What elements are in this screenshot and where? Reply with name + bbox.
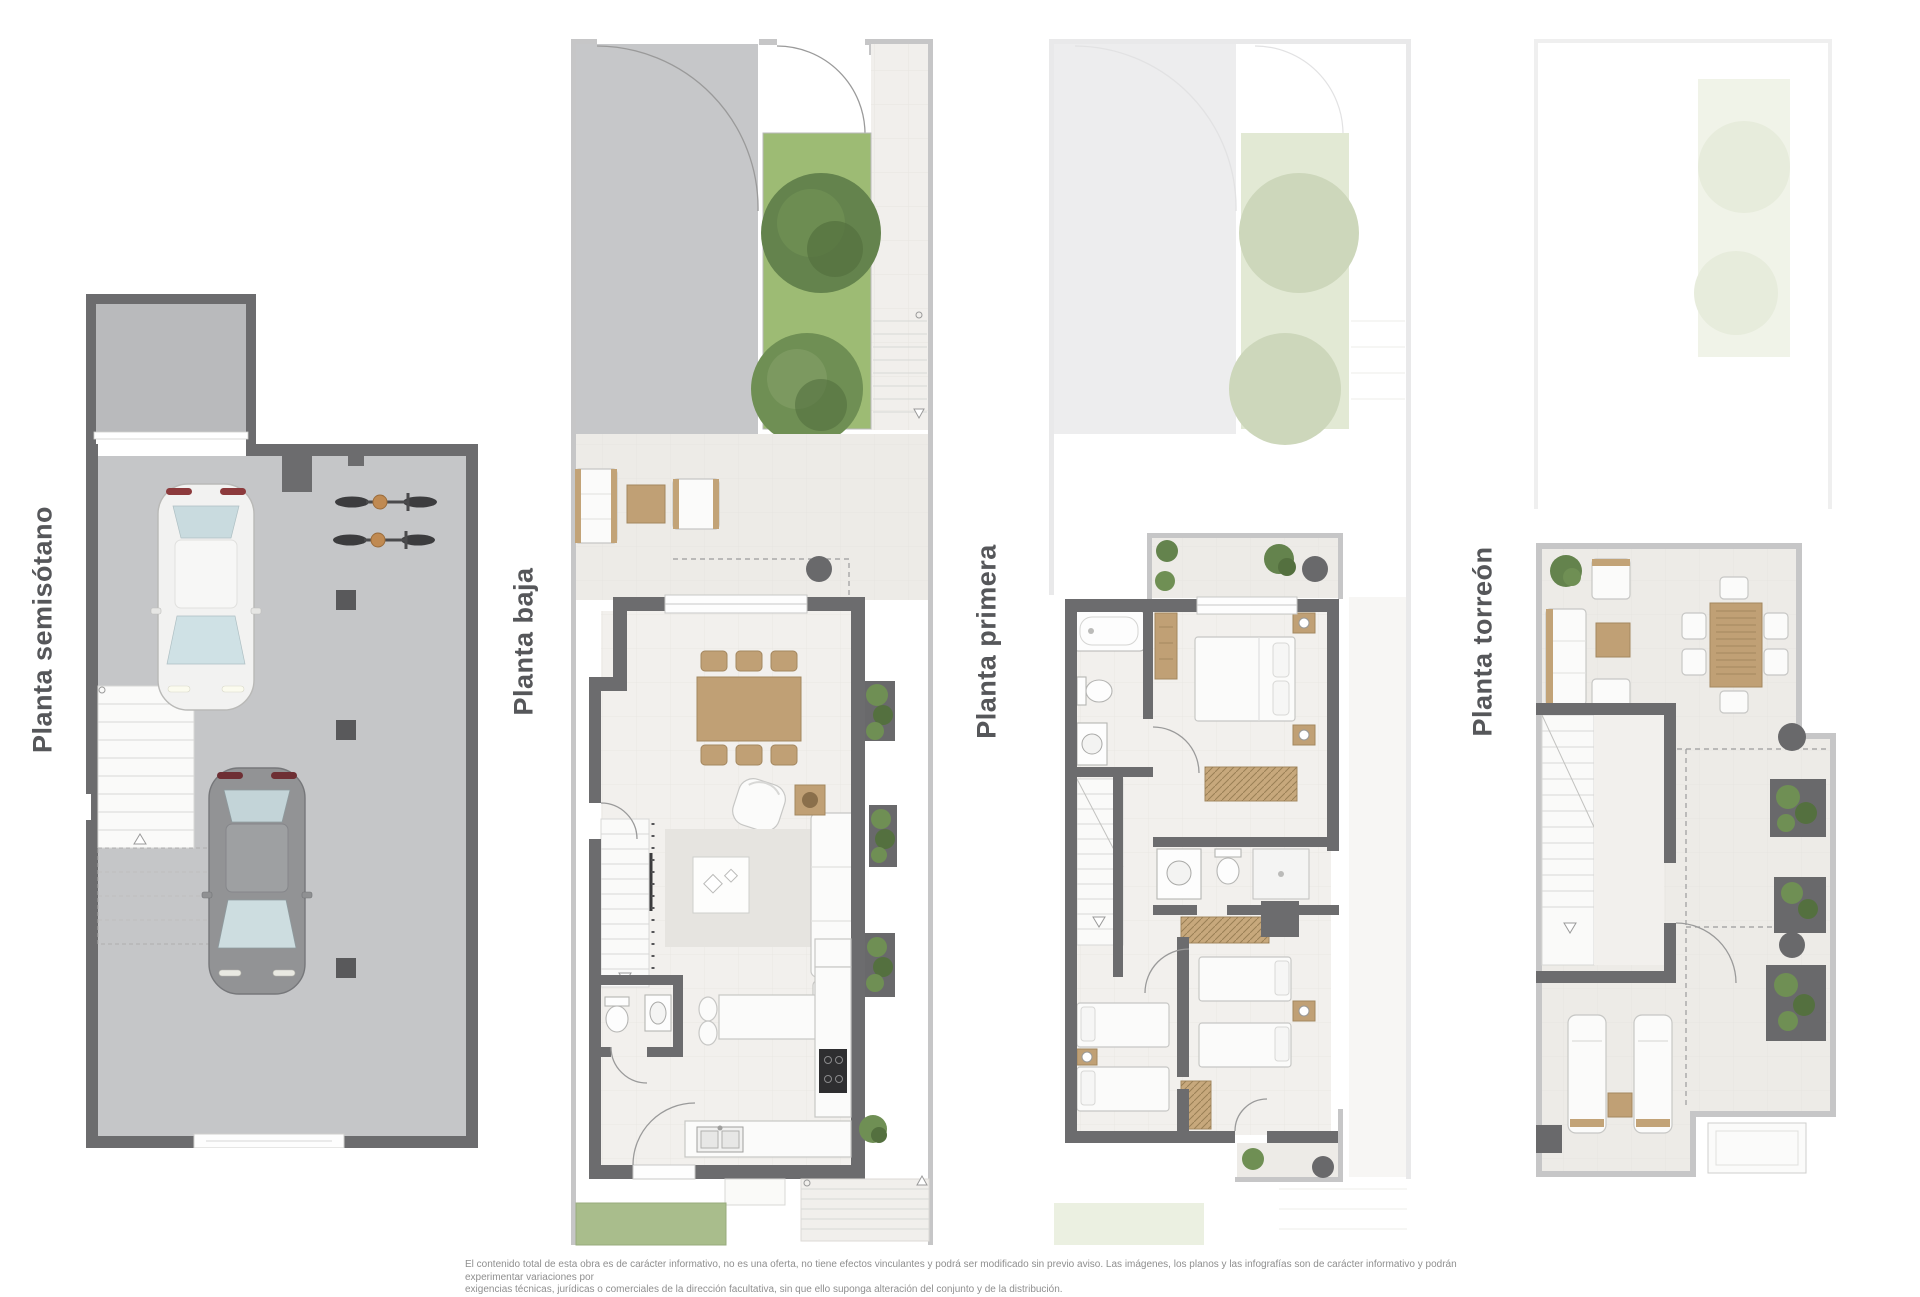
column-icon xyxy=(336,590,356,610)
single-bed-icon xyxy=(1199,957,1291,1001)
planter-icon xyxy=(1774,877,1826,933)
driveway xyxy=(576,44,758,434)
plan-torreon-drawing xyxy=(1530,37,1860,1182)
sun-lounger-icon xyxy=(1568,1015,1606,1133)
corner-block xyxy=(1536,1125,1562,1153)
nightstand-icon xyxy=(1293,725,1315,745)
sink-icon xyxy=(1077,723,1107,765)
disclaimer-line-2: exigencias técnicas, jurídicas o comerci… xyxy=(465,1284,1475,1297)
plan3-label: Planta primera xyxy=(972,482,1003,802)
double-bed-icon xyxy=(1195,637,1295,721)
single-bed-icon xyxy=(1077,1067,1169,1111)
planter-icon xyxy=(865,933,895,997)
column-icon xyxy=(336,720,356,740)
terrace-door-icon xyxy=(633,1165,695,1179)
skylight xyxy=(1708,1123,1806,1173)
coffee-table-icon xyxy=(693,857,749,913)
single-bed-icon xyxy=(1077,1003,1169,1047)
garden-strip xyxy=(576,1203,726,1245)
planter-icon xyxy=(1766,965,1826,1041)
garage-door-icon xyxy=(94,432,248,439)
planter-pot-icon xyxy=(806,556,832,582)
sun-lounger-icon xyxy=(1634,1015,1672,1133)
plan2-label: Planta baja xyxy=(509,482,540,802)
coffee-table-icon xyxy=(1596,623,1630,657)
ramp-area xyxy=(86,294,256,444)
side-table-icon xyxy=(795,785,825,815)
wardrobe-icon xyxy=(1205,767,1297,801)
cooktop-icon xyxy=(819,1049,847,1093)
outdoor-sofa-icon xyxy=(1546,609,1586,705)
balcony-plant-icon xyxy=(1156,540,1178,562)
single-bed-icon xyxy=(1199,1023,1291,1067)
lounge-chair-icon xyxy=(1592,559,1630,599)
terrace xyxy=(575,434,928,600)
planter-icon xyxy=(865,681,895,741)
outdoor-sofa-icon xyxy=(575,469,617,543)
floorplan-sheet: { "sheet": { "type": "residential-floorp… xyxy=(0,0,1920,1280)
tree-icon xyxy=(761,173,881,293)
disclaimer-line-1: El contenido total de esta obra es de ca… xyxy=(465,1259,1475,1284)
shower-icon xyxy=(1253,849,1309,899)
plan-primera-drawing xyxy=(1047,37,1413,1247)
plan4-label: Planta torreón xyxy=(1468,482,1499,802)
kitchen-sink-icon xyxy=(697,1126,743,1153)
nightstand-icon xyxy=(1293,1001,1315,1021)
dining-table-icon xyxy=(697,651,801,765)
planter-pot-icon xyxy=(1302,556,1328,582)
plan-semisotano-drawing xyxy=(86,294,478,1148)
planter-icon xyxy=(1770,779,1826,837)
nightstand-icon xyxy=(1293,613,1315,633)
ghost-lower-floor xyxy=(1534,39,1832,509)
plant-icon xyxy=(871,1127,887,1143)
toilet-icon xyxy=(1215,849,1241,884)
chimney-block xyxy=(1261,901,1299,937)
wardrobe-icon xyxy=(1181,917,1269,943)
kitchen-counter xyxy=(815,967,851,1117)
column-icon xyxy=(1778,723,1806,751)
planter-pot-icon xyxy=(1312,1156,1334,1178)
balcony-plant-icon xyxy=(1278,558,1296,576)
toilet-icon xyxy=(605,997,629,1032)
plan1-label: Planta semisótano xyxy=(28,470,59,790)
fridge-icon xyxy=(815,939,851,967)
wardrobe-icon xyxy=(1155,613,1177,679)
exterior-stairs-icon xyxy=(801,1176,929,1241)
column-icon xyxy=(336,958,356,978)
plan-baja-drawing xyxy=(569,37,935,1247)
tree-icon xyxy=(751,333,863,445)
lawn xyxy=(751,133,881,445)
stairs-icon xyxy=(601,819,653,987)
legal-disclaimer: El contenido total de esta obra es de ca… xyxy=(465,1259,1475,1297)
column-icon xyxy=(1779,932,1805,958)
front-balcony xyxy=(1147,533,1343,599)
porch-slab xyxy=(725,1179,785,1205)
side-table-icon xyxy=(1608,1093,1632,1117)
sink-icon xyxy=(1167,861,1191,885)
balcony-plant-icon xyxy=(1242,1148,1264,1170)
nightstand-icon xyxy=(1077,1049,1097,1065)
dark-car-icon xyxy=(202,768,312,994)
plant-icon xyxy=(1563,568,1581,586)
planter-icon xyxy=(869,805,897,867)
coffee-table-icon xyxy=(627,485,665,523)
balcony-plant-icon xyxy=(1155,571,1175,591)
lounge-chair-icon xyxy=(673,479,719,529)
bathtub-icon xyxy=(1073,611,1145,651)
sink-icon xyxy=(645,995,671,1031)
white-car-icon xyxy=(151,484,261,710)
